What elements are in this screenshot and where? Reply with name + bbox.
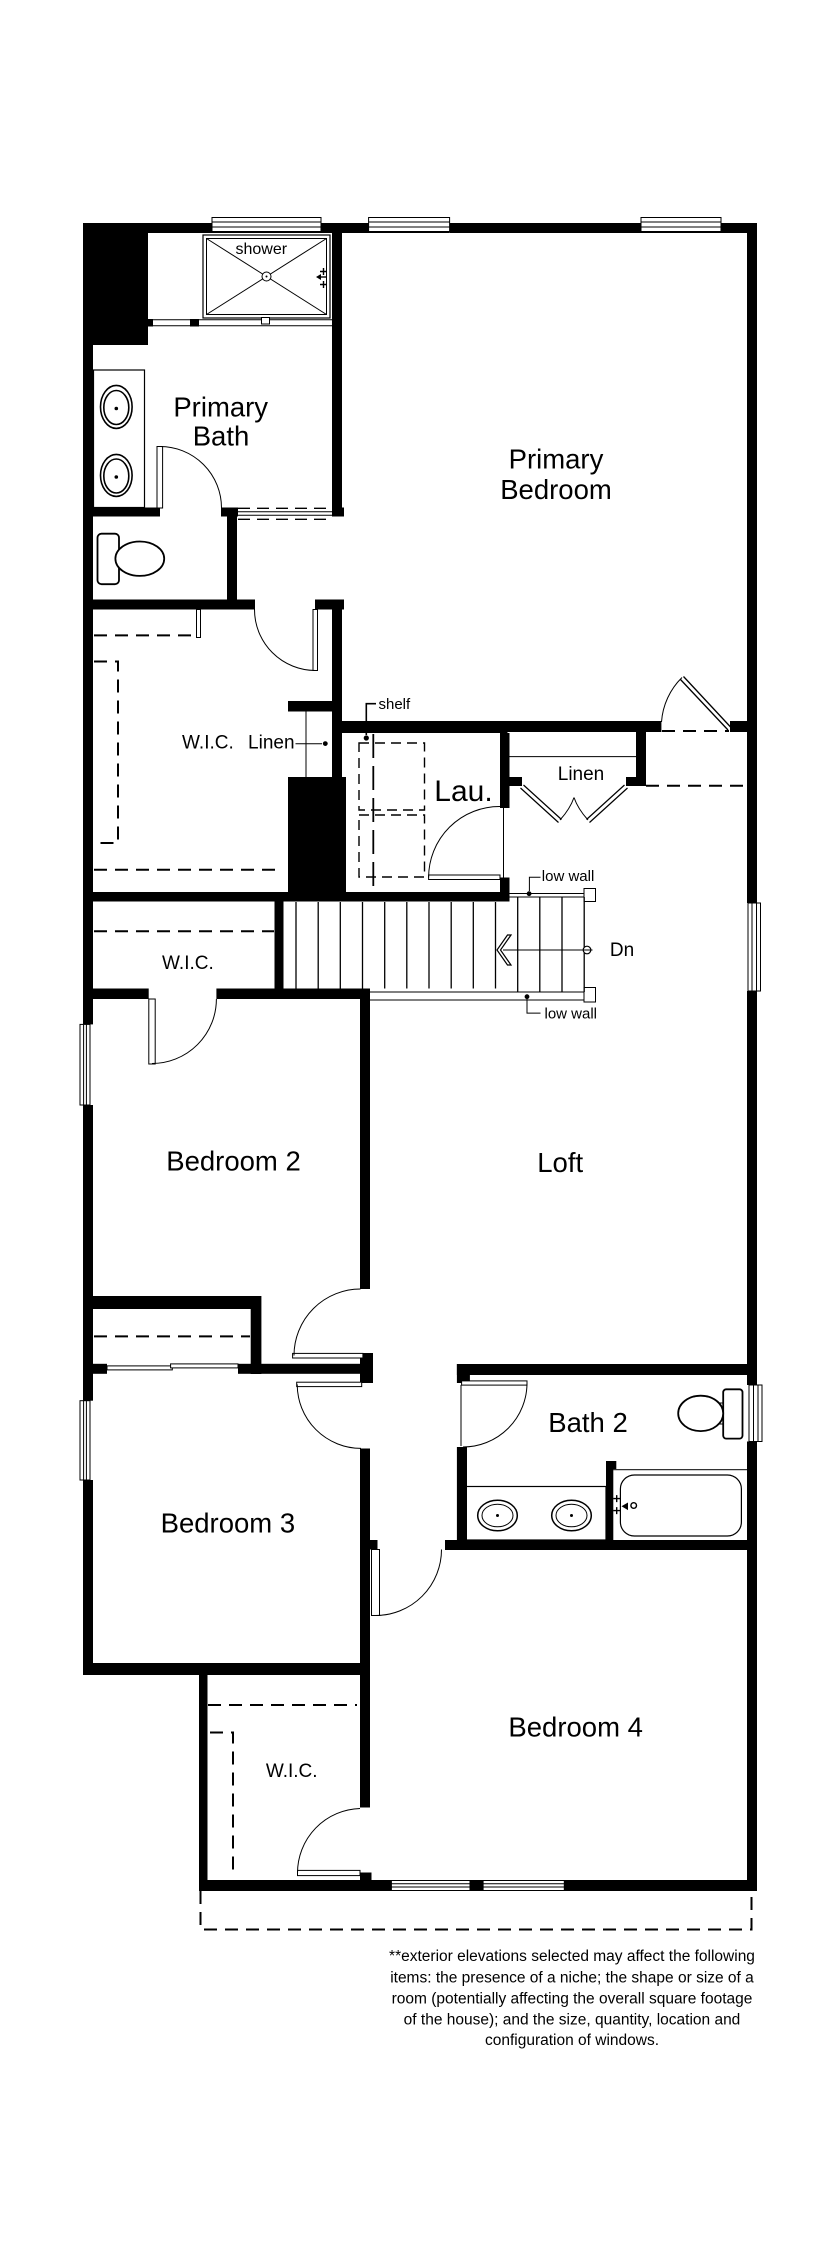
svg-text:Linen: Linen — [558, 764, 605, 785]
svg-text:Linen: Linen — [248, 733, 295, 754]
svg-text:W.I.C.: W.I.C. — [182, 733, 234, 754]
svg-text:Bedroom 3: Bedroom 3 — [161, 1508, 296, 1539]
svg-text:Bath: Bath — [193, 420, 250, 451]
svg-text:Primary: Primary — [173, 392, 268, 423]
svg-text:Lau.: Lau. — [434, 775, 492, 808]
svg-text:Primary: Primary — [509, 444, 604, 475]
svg-text:**exterior elevations selected: **exterior elevations selected may affec… — [389, 1948, 755, 1965]
svg-text:shower: shower — [236, 241, 288, 258]
svg-text:Bedroom 4: Bedroom 4 — [508, 1712, 643, 1743]
svg-text:W.I.C.: W.I.C. — [162, 953, 214, 974]
svg-text:Bath 2: Bath 2 — [548, 1407, 628, 1438]
svg-text:configuration of windows.: configuration of windows. — [485, 2032, 659, 2049]
svg-text:Loft: Loft — [537, 1147, 583, 1178]
svg-text:of the house); and the size, q: of the house); and the size, quantity, l… — [404, 2012, 741, 2029]
svg-text:items: the presence of a niche: items: the presence of a niche; the shap… — [390, 1969, 754, 1986]
svg-text:shelf: shelf — [379, 696, 412, 713]
svg-text:low wall: low wall — [545, 1005, 598, 1022]
svg-text:Bedroom 2: Bedroom 2 — [166, 1146, 301, 1177]
svg-text:low wall: low wall — [542, 868, 595, 885]
svg-text:W.I.C.: W.I.C. — [266, 1761, 318, 1782]
svg-text:room (potentially affecting th: room (potentially affecting the overall … — [392, 1990, 753, 2007]
svg-text:Dn: Dn — [610, 940, 634, 961]
svg-text:Bedroom: Bedroom — [500, 474, 612, 505]
